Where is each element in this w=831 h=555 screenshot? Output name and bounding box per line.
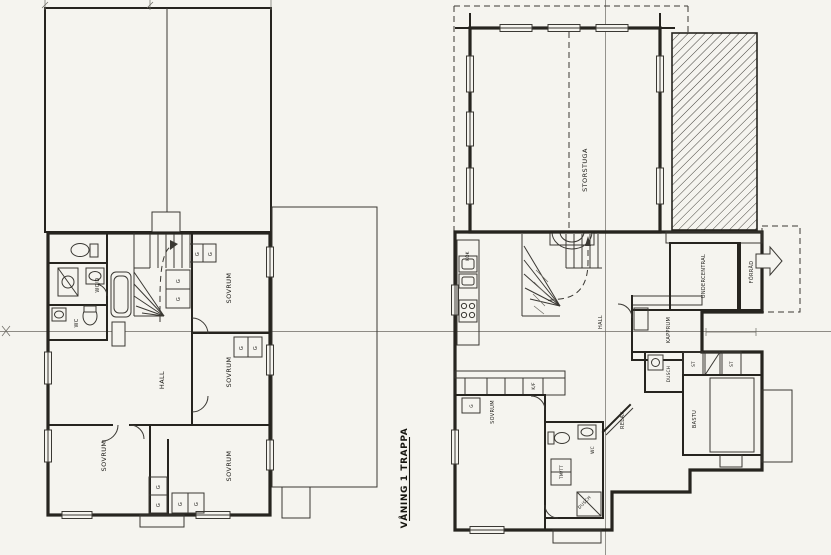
room-label-kok: KÖK (464, 251, 471, 260)
left-plan-roof-area (42, 0, 271, 232)
insulated-wall-band (632, 296, 702, 305)
insulated-wall-band (666, 232, 762, 243)
closet-label: G (253, 346, 259, 350)
closet-label: G (194, 502, 200, 506)
relax-area: RELAX (603, 405, 633, 435)
left-plan: WC/D WC SOVRUM SOVRUM SOVRUM SOVRUM HALL… (42, 0, 377, 527)
closet-label: G (156, 485, 162, 489)
room-label-relax: RELAX (620, 411, 626, 429)
closet-label: G (195, 252, 201, 256)
closet-label: G (239, 346, 245, 350)
left-plan-staircase (134, 233, 190, 322)
kapprum-room: KAPPRUM (618, 296, 683, 360)
room-label-wc-right: WC (590, 446, 596, 454)
room-label-sovrum-s: SOVRUM (225, 451, 233, 482)
room-label-wcd: WC/D (95, 277, 101, 292)
storage-label-st: ST (691, 361, 697, 367)
cabinet-row: K/F (465, 378, 565, 395)
room-label-sovrum-e: SOVRUM (225, 357, 233, 388)
room-label-hall: HALL (158, 371, 166, 389)
laundry-label: TM/TT (559, 465, 565, 480)
sauna-benches (710, 378, 754, 452)
room-label-kapprum: KAPPRUM (666, 317, 672, 343)
floorplan-drawing: WC/D WC SOVRUM SOVRUM SOVRUM SOVRUM HALL… (0, 0, 831, 555)
room-label-sovrum-sw: SOVRUM (100, 441, 108, 472)
insulated-wall-band (455, 371, 565, 378)
left-plan-annex (272, 207, 377, 518)
drawing-title-block: VÅNING 1 TRAPPA (399, 428, 410, 529)
room-label-hall-right: HALL (598, 315, 604, 329)
right-plan-sovrum: G SOVRUM (455, 395, 545, 530)
closet-label: G (176, 279, 182, 283)
room-label-bastu: BASTU (692, 410, 698, 428)
hatched-terrace (672, 33, 757, 230)
room-label-dusch: DUSCH (666, 366, 672, 382)
room-label-wc: WC (74, 318, 80, 327)
closet-label: G (156, 503, 162, 507)
right-plan-entry-step (553, 530, 601, 543)
right-plan-bathroom: WC TM/TT DUSCH (545, 422, 603, 518)
right-plan: STORSTUGA (452, 6, 801, 543)
room-label-storstuga: STORSTUGA (581, 148, 589, 192)
kitchen-area: KÖK (457, 240, 479, 345)
blueprint-scan-page: WC/D WC SOVRUM SOVRUM SOVRUM SOVRUM HALL… (0, 0, 831, 555)
closet-label: G (469, 404, 475, 408)
closet-label: G (176, 297, 182, 301)
room-label-sovrum-right: SOVRUM (490, 400, 496, 424)
left-plan-bathroom-fixtures (52, 244, 131, 347)
room-label-sovrum-ne: SOVRUM (225, 273, 233, 304)
entry-arrow (756, 247, 782, 275)
left-plan-entry-step (140, 515, 184, 527)
storage-label-st: ST (729, 361, 735, 367)
room-label-undercentral: UNDERCENTRAL (701, 254, 707, 298)
undercentral-room: UNDERCENTRAL FÖRRÅD (632, 243, 782, 336)
fridge-freezer-label: K/F (531, 382, 537, 390)
room-label-forrad: FÖRRÅD (748, 261, 755, 284)
closet-label: G (178, 502, 184, 506)
bastu-room: BASTU (683, 375, 792, 467)
closet-label: G (208, 252, 214, 256)
drawing-title: VÅNING 1 TRAPPA (399, 428, 410, 529)
right-plan-outer-wall (455, 232, 762, 530)
storstuga-room: STORSTUGA (456, 14, 674, 232)
shower-storage-row: DUSCH ST ST (632, 352, 762, 392)
